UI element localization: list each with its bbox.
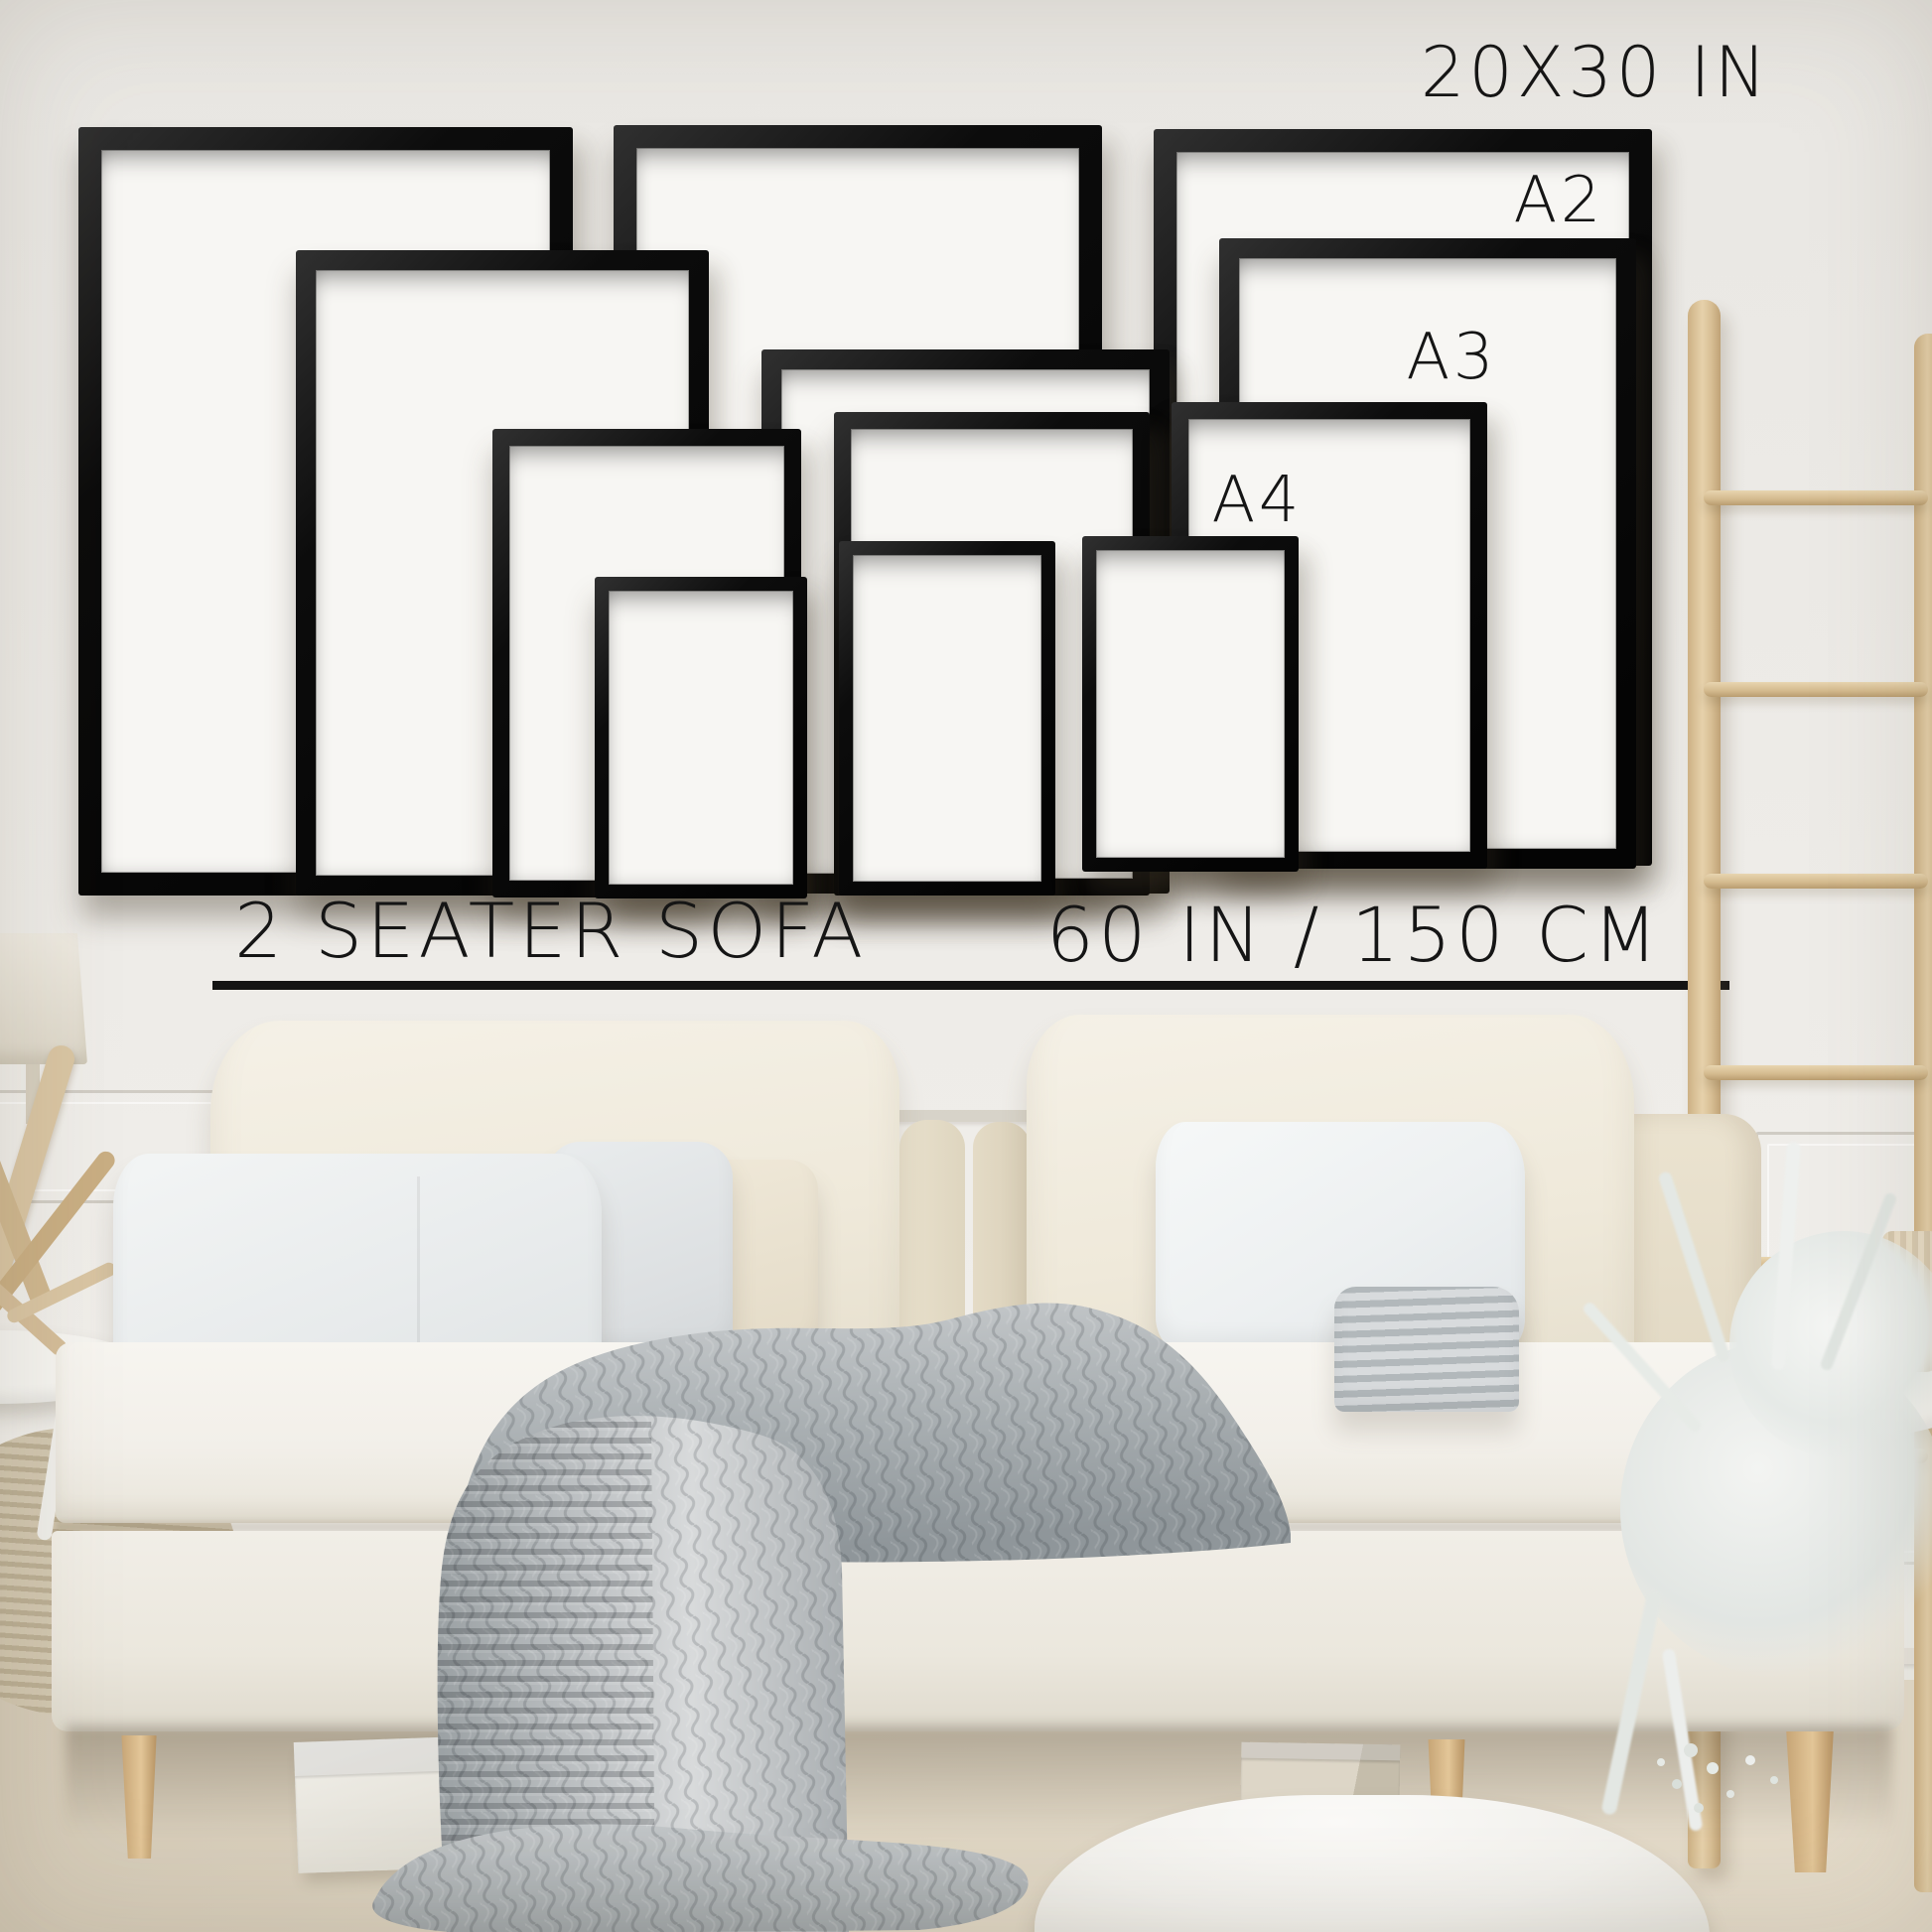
frame-mat (609, 591, 793, 885)
frame-a4-middle (839, 541, 1055, 896)
ladder-rung (1704, 874, 1928, 889)
table-lamp-shade (0, 933, 87, 1064)
frame-a4-left (595, 577, 807, 898)
frame-a4-right (1082, 536, 1299, 872)
size-guide-photo: 20X30 IN A2 A3 A4 2 SEATER SOFA 60 IN / … (0, 0, 1932, 1932)
size-label-20x30: 20X30 IN (1421, 38, 1770, 107)
ladder-rung (1704, 1065, 1928, 1080)
sofa-width-label: 60 IN / 150 CM (1046, 897, 1662, 973)
size-label-a4: A4 (1211, 469, 1303, 532)
size-label-a3: A3 (1406, 326, 1497, 389)
ladder-right-rail (1914, 334, 1932, 1892)
frame-mat (853, 555, 1041, 882)
ladder-rung (1704, 682, 1928, 697)
frame-mat (1096, 550, 1285, 858)
ladder-rung (1704, 490, 1928, 505)
striped-knit-pillow (1334, 1287, 1519, 1412)
size-label-a2: A2 (1513, 169, 1604, 232)
sofa-label: 2 SEATER SOFA (234, 894, 867, 969)
plant-leaf-dots (1684, 1743, 1698, 1757)
sofa-width-underline (212, 981, 1729, 990)
